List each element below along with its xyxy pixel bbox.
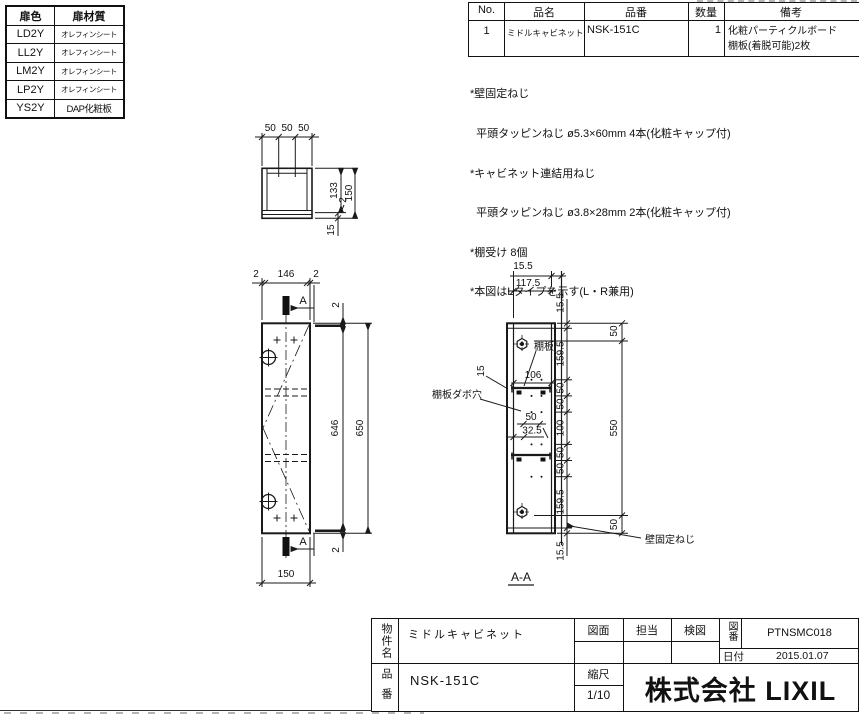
note-line: *棚受け 8個 (470, 247, 858, 260)
date-value: 2015.01.07 (776, 650, 829, 662)
door-color-code: LP2Y (6, 81, 55, 100)
section-dim-50: 50 (525, 412, 537, 423)
scale-value: 1/10 (574, 688, 623, 702)
drawing-no-value: PTNSMC018 (741, 627, 858, 639)
plan-dim-50a: 50 (265, 123, 277, 134)
note-line: 平頭タッピンねじ ø5.3×60mm 4本(化粧キャップ付) (470, 128, 858, 141)
table-row: LD2Y オレフィンシート (6, 25, 124, 44)
plan-dim-2: 2 (338, 197, 349, 203)
title-block: 物件名 ミドルキャビネット 図面 担当 検図 図番 PTNSMC018 日付 2… (371, 618, 859, 712)
front-dim-2l: 2 (253, 269, 259, 280)
door-material: オレフィンシート (55, 44, 125, 63)
door-table-header-material: 扉材質 (55, 6, 125, 25)
part-no-label: 品番 (378, 668, 394, 708)
project-name-value: ミドルキャビネット (408, 626, 525, 642)
parts-qty: 1 (688, 24, 721, 36)
parts-header-no: No. (469, 4, 504, 16)
note-line: *壁固定ねじ (470, 88, 858, 101)
parts-header-remarks: 備考 (724, 4, 858, 20)
parts-no: 1 (469, 25, 504, 37)
front-dim-650: 650 (355, 419, 366, 436)
parts-header-name: 品名 (504, 4, 584, 20)
section-title: A-A (511, 570, 531, 584)
staff-label: 担当 (623, 622, 671, 638)
door-color-code: LL2Y (6, 44, 55, 63)
chain-dim-4: 100 (556, 419, 567, 436)
front-dim-146: 146 (278, 269, 295, 280)
section-mark-a-bottom: A (299, 536, 307, 548)
door-material: オレフィンシート (55, 62, 125, 81)
divider (469, 20, 859, 21)
project-name-label: 物件名 (378, 623, 394, 659)
table-row: LM2Y オレフィンシート (6, 62, 124, 81)
plan-dim-50b: 50 (281, 123, 293, 134)
door-color-code: LD2Y (6, 25, 55, 44)
door-color-code: LM2Y (6, 62, 55, 81)
door-material: オレフィンシート (55, 81, 125, 100)
section-dim-door-15: 15 (476, 365, 487, 377)
part-no-value: NSK-151C (410, 673, 480, 688)
chain-dim-8: 15.5 (556, 541, 567, 561)
company-name: 株式会社 LIXIL (623, 669, 858, 708)
front-dim-646: 646 (330, 419, 341, 436)
note-line: *キャビネット連結用ねじ (470, 168, 858, 181)
chain-dim-1: 159.5 (556, 341, 567, 366)
drawing-label: 図面 (574, 622, 623, 638)
door-color-table: 扉色 扉材質 LD2Y オレフィンシート LL2Y オレフィンシート LM2Y … (5, 5, 125, 119)
table-row: LL2Y オレフィンシート (6, 44, 124, 63)
parts-name: ミドルキャビネット (507, 27, 584, 39)
divider (398, 619, 399, 711)
scale-label: 縮尺 (574, 666, 623, 682)
cropped-sheet-edge-bottom (0, 710, 372, 711)
plan-view (255, 133, 358, 236)
plan-dim-50c: 50 (298, 123, 310, 134)
outer-dim-2: 50 (609, 519, 620, 531)
dowel-hole-label: 棚板ダボ穴 (432, 388, 482, 401)
date-label: 日付 (723, 649, 744, 664)
divider (719, 619, 720, 663)
parts-partno: NSK-151C (587, 24, 640, 36)
door-color-code: YS2Y (6, 99, 55, 118)
parts-header-qty: 数量 (688, 4, 724, 20)
door-material: オレフィンシート (55, 25, 125, 44)
note-line: *本図はLタイプを示す(L・R兼用) (470, 286, 858, 299)
section-dim-32-5: 32.5 (522, 426, 542, 437)
divider (372, 663, 858, 664)
outer-dim-0: 50 (609, 325, 620, 337)
front-dim-150: 150 (278, 569, 295, 580)
front-view (252, 278, 372, 587)
check-label: 検図 (671, 622, 719, 638)
section-mark-a-top: A (299, 295, 307, 307)
cropped-sheet-edge-top (697, 0, 857, 2)
shelf-label: 棚板 (534, 340, 554, 353)
door-table-header-color: 扉色 (6, 6, 55, 25)
parts-table: No. 品名 品番 数量 備考 1 ミドルキャビネット NSK-151C 1 化… (468, 2, 859, 57)
note-line: 平頭タッピンねじ ø3.8×28mm 2本(化粧キャップ付) (470, 207, 858, 220)
notes-block: *壁固定ねじ 平頭タッピンねじ ø5.3×60mm 4本(化粧キャップ付) *キ… (470, 62, 858, 313)
divider (574, 641, 719, 642)
plan-dim-15: 15 (326, 224, 337, 236)
chain-dim-3: 50 (556, 398, 567, 410)
wall-screw-label: 壁固定ねじ (645, 533, 695, 546)
front-dim-2r: 2 (313, 269, 319, 280)
front-dim-2t: 2 (331, 302, 342, 308)
chain-dim-7: 159.5 (556, 489, 567, 514)
table-row: LP2Y オレフィンシート (6, 81, 124, 100)
chain-dim-5: 50 (556, 447, 567, 459)
chain-dim-6: 50 (556, 463, 567, 475)
cropped-text-remnant (4, 712, 424, 714)
parts-remarks-line2: 棚板(着脱可能)2枚 (728, 37, 810, 52)
parts-remarks-line1: 化粧パーティクルボード (728, 22, 837, 37)
parts-header-partno: 品番 (584, 4, 688, 20)
plan-dim-133: 133 (329, 182, 340, 199)
drawing-no-label: 図番 (724, 621, 739, 647)
door-material: DAP化粧板 (55, 99, 125, 118)
divider (574, 685, 623, 686)
outer-dim-1: 550 (609, 419, 620, 436)
chain-dim-2: 50 (556, 382, 567, 394)
front-dim-2b: 2 (331, 547, 342, 553)
table-row: YS2Y DAP化粧板 (6, 99, 124, 118)
section-dim-106: 106 (525, 370, 542, 381)
